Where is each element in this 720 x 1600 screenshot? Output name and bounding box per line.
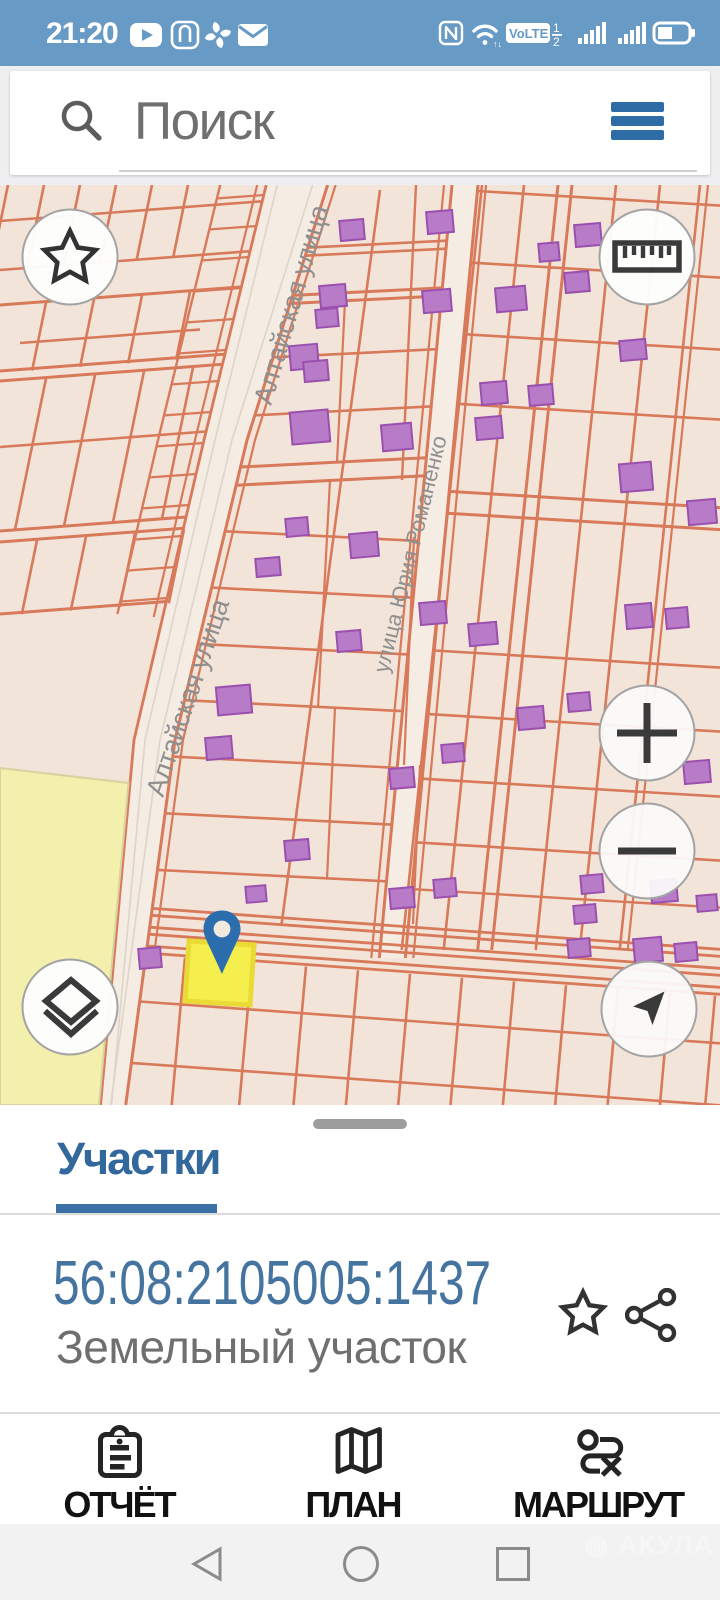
svg-text:VoLTE: VoLTE: [509, 26, 549, 41]
svg-text:2: 2: [553, 35, 560, 49]
svg-text:1: 1: [553, 21, 560, 35]
svg-text:↑↓: ↑↓: [493, 39, 502, 49]
